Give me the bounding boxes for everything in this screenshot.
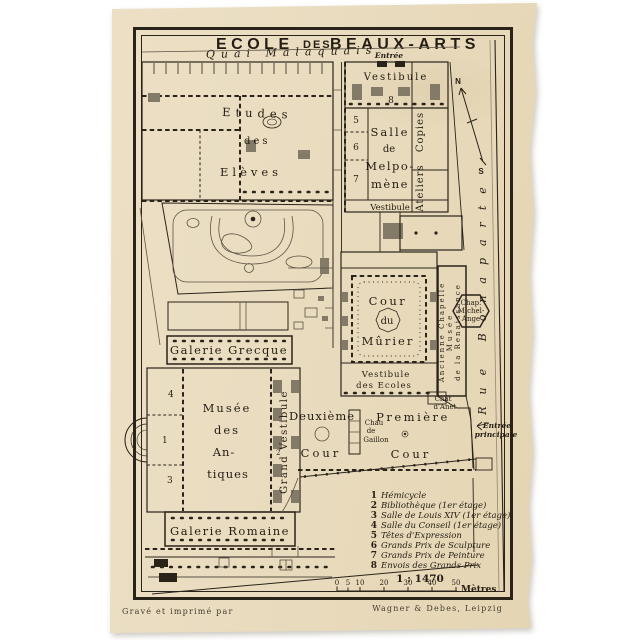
label-du: du (381, 316, 394, 327)
building-cour-du-murier: Cour du Mûrier Vestibule des Ecoles (341, 252, 437, 396)
compass-north: N (455, 77, 461, 86)
legend-item-6: Grands Prix de Sculpture (381, 541, 490, 551)
legend-item-8: Envois des Grands Prix (380, 561, 481, 571)
label-deuxieme-cour: Cour (301, 446, 342, 460)
label-vestibule-mid: Vestibule (369, 203, 410, 213)
label-mene: mène (371, 177, 409, 191)
label-eleves: Elèves (220, 165, 282, 179)
label-gaillon-1: Chau (365, 419, 384, 427)
legend-num-7: 7 (371, 551, 377, 561)
label-anet-2: d'Anet (434, 403, 457, 411)
scan-background: ECOLE DES BEAUX-ARTS Quai Malaquais Entr… (0, 0, 640, 640)
label-ateliers: Ateliers (415, 164, 426, 212)
label-premiere-cour: Cour (391, 447, 432, 461)
room-number-5: 5 (353, 116, 359, 126)
label-gaillon-3: Gaillon (363, 436, 389, 444)
chateau-anet: Chât d'Anet (428, 392, 457, 411)
label-rue-bonaparte: Rue Bonaparte (476, 175, 489, 416)
beaux-arts-plan: ECOLE DES BEAUX-ARTS Quai Malaquais Entr… (0, 0, 640, 640)
label-vestibule-ecoles-1: Vestibule (361, 370, 411, 380)
legend-num-5: 5 (371, 531, 377, 541)
garden (142, 201, 333, 294)
label-etudes: Etudes (222, 105, 293, 121)
label-cour: Cour (369, 294, 408, 308)
label-murier: Mûrier (362, 334, 415, 348)
compass-south: S (478, 167, 484, 176)
label-premiere: Première (376, 410, 450, 424)
street-edge-left (140, 208, 160, 345)
credit-left: Gravé et imprimé par (122, 607, 234, 616)
label-deuxieme: Deuxième (289, 409, 355, 423)
scale-tick-30: 30 (404, 579, 413, 587)
label-etudes-des: des (244, 136, 270, 147)
compass: N S (455, 77, 486, 176)
room-number-4: 4 (168, 390, 174, 400)
label-musee: Musée (203, 401, 252, 415)
label-vestibule-top: Vestibule (363, 72, 429, 83)
label-vestibule-ecoles-2: des Ecoles (356, 381, 412, 391)
room-number-8: 8 (388, 96, 394, 106)
legend-item-2: Bibliothèque (1er étage) (380, 500, 486, 511)
credit-right: Wagner & Debes, Leipzig (372, 604, 503, 613)
legend-num-3: 3 (371, 511, 377, 521)
map-page: ECOLE DES BEAUX-ARTS Quai Malaquais Entr… (0, 0, 640, 640)
legend-item-7: Grands Prix de Peinture (381, 551, 485, 561)
legend-num-6: 6 (371, 541, 377, 551)
legend-num-4: 4 (371, 521, 377, 531)
label-musee-an: An- (212, 445, 236, 459)
legend: 1 Hémicycle 2 Bibliothèque (1er étage) 3… (335, 490, 511, 595)
building-musee-des-antiques: Musée des An- tiques 4 1 3 Grand Vestibu… (125, 368, 300, 512)
label-salle-de: de (383, 144, 395, 155)
label-grand-vestibule: Grand Vestibule (279, 390, 290, 494)
room-number-6: 6 (353, 143, 359, 153)
label-salle: Salle (371, 125, 410, 139)
legend-item-3: Salle de Louis XIV (1er étage) (381, 510, 510, 521)
label-musee-tiques: tiques (207, 467, 249, 481)
label-entree-top: Entrée (374, 51, 403, 60)
room-number-7: 7 (353, 175, 359, 185)
scale-tick-20: 20 (380, 579, 389, 587)
legend-num-1: 1 (371, 491, 377, 501)
building-galerie-romaine: Galerie Romaine (165, 512, 295, 546)
legend-item-5: Têtes d'Expression (381, 530, 462, 541)
building-melpomene: Vestibule 8 5 6 7 Salle de Melpo- mène C… (345, 62, 448, 213)
scale-tick-10: 10 (356, 579, 365, 587)
legend-item-4: Salle du Conseil (1er étage) (381, 520, 501, 531)
legend-num-2: 2 (371, 501, 377, 511)
label-copies: Copies (415, 112, 426, 152)
credits: Gravé et imprimé par Wagner & Debes, Lei… (122, 604, 503, 616)
legend-num-8: 8 (371, 561, 377, 571)
room-number-3: 3 (167, 476, 173, 486)
room-number-2: 2 (276, 449, 280, 457)
scale-tick-5: 5 (346, 579, 350, 587)
building-etudes-des-eleves: Etudes des Elèves (142, 62, 333, 200)
label-ancienne-chapelle: Ancienne Chapelle (438, 282, 446, 384)
label-musee-des: des (214, 423, 240, 437)
legend-item-1: Hémicycle (380, 490, 426, 501)
building-rue-bonaparte-north (400, 216, 462, 250)
building-strip (168, 302, 288, 330)
building-ancienne-chapelle: Ancienne Chapelle Musée de la Renaissanc… (438, 266, 466, 396)
building-galerie-grecque: Galerie Grecque (167, 336, 292, 364)
scale-unit: Mètres (461, 584, 496, 595)
label-musee-renaissance-1: Musée (446, 313, 454, 352)
scale-tick-40: 40 (428, 579, 437, 587)
label-galerie-grecque: Galerie Grecque (170, 343, 288, 357)
scale-tick-50: 50 (452, 579, 461, 587)
label-galerie-romaine: Galerie Romaine (170, 524, 290, 538)
label-melpo: Melpo- (365, 159, 414, 173)
room-number-1: 1 (162, 436, 168, 446)
label-gaillon-2: de (367, 427, 376, 435)
scale-tick-0: 0 (335, 579, 339, 587)
deuxieme-cour: Deuxième Cour (289, 409, 355, 460)
